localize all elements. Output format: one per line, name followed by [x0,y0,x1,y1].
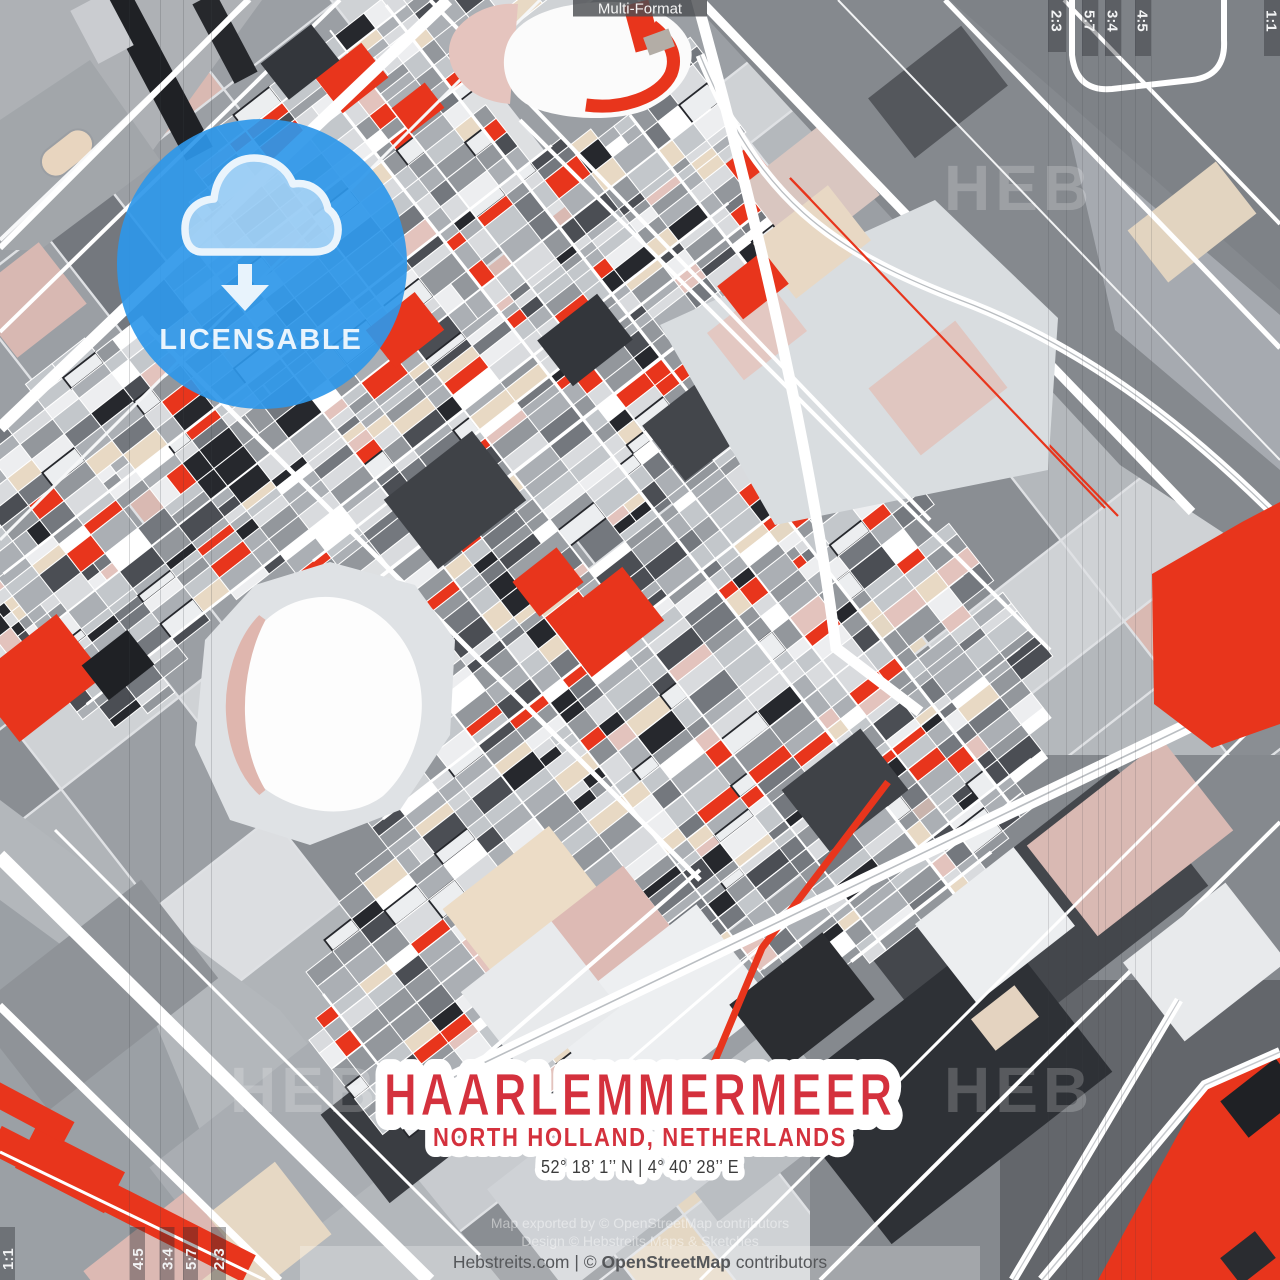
svg-text:HEB: HEB [230,1054,380,1126]
svg-text:HEB: HEB [944,152,1094,224]
svg-text:3:4: 3:4 [160,1248,177,1270]
svg-text:NORTH HOLLAND, NETHERLANDS: NORTH HOLLAND, NETHERLANDS [433,1122,847,1152]
svg-text:Map exported by © OpenStreetMa: Map exported by © OpenStreetMap contribu… [491,1215,789,1231]
svg-text:5:7: 5:7 [1081,10,1098,32]
svg-text:Multi-Format: Multi-Format [598,1,683,18]
svg-text:2:3: 2:3 [1048,10,1065,32]
svg-text:2:3: 2:3 [211,1248,228,1270]
svg-text:3:4: 3:4 [1104,10,1121,32]
svg-text:4:5: 4:5 [130,1248,147,1270]
svg-text:1:1: 1:1 [1263,10,1280,32]
svg-text:HAARLEMMERMEER: HAARLEMMERMEER [384,1062,896,1128]
svg-text:5:7: 5:7 [183,1248,200,1270]
svg-text:LICENSABLE: LICENSABLE [159,324,362,356]
svg-text:Hebstreits.com | © OpenStreetM: Hebstreits.com | © OpenStreetMap contrib… [453,1252,828,1272]
svg-text:4:5: 4:5 [1134,10,1151,32]
svg-text:1:1: 1:1 [0,1248,17,1270]
svg-text:52° 18’ 1’’ N | 4° 40’ 2: 52° 18’ 1’’ N | 4° 40’ 28’’ E [541,1157,739,1177]
svg-text:HEB: HEB [944,1054,1094,1126]
